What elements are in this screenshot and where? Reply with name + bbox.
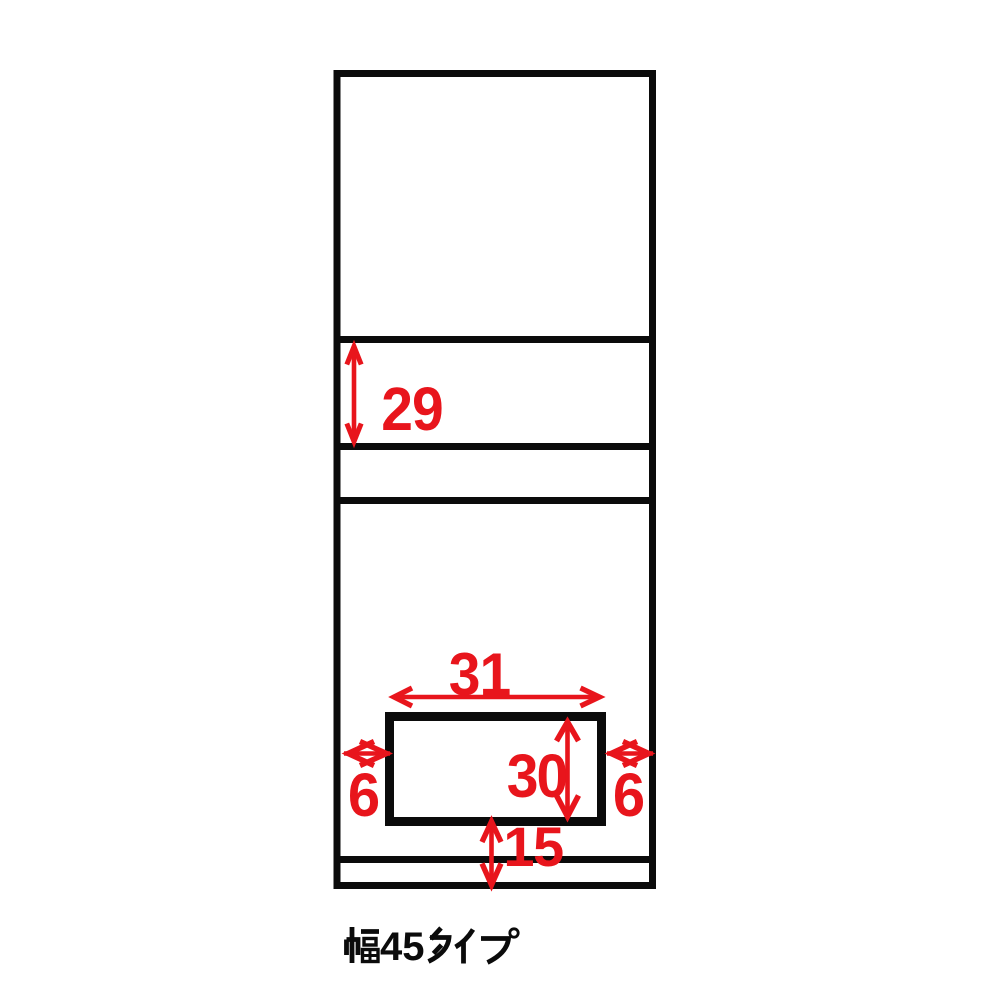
svg-text:6: 6 [348, 760, 380, 829]
svg-text:30: 30 [507, 741, 566, 811]
svg-text:45: 45 [380, 925, 425, 969]
svg-text:31: 31 [449, 642, 510, 709]
svg-text:29: 29 [381, 374, 442, 444]
svg-text:6: 6 [613, 761, 645, 830]
svg-text:15: 15 [503, 815, 563, 878]
